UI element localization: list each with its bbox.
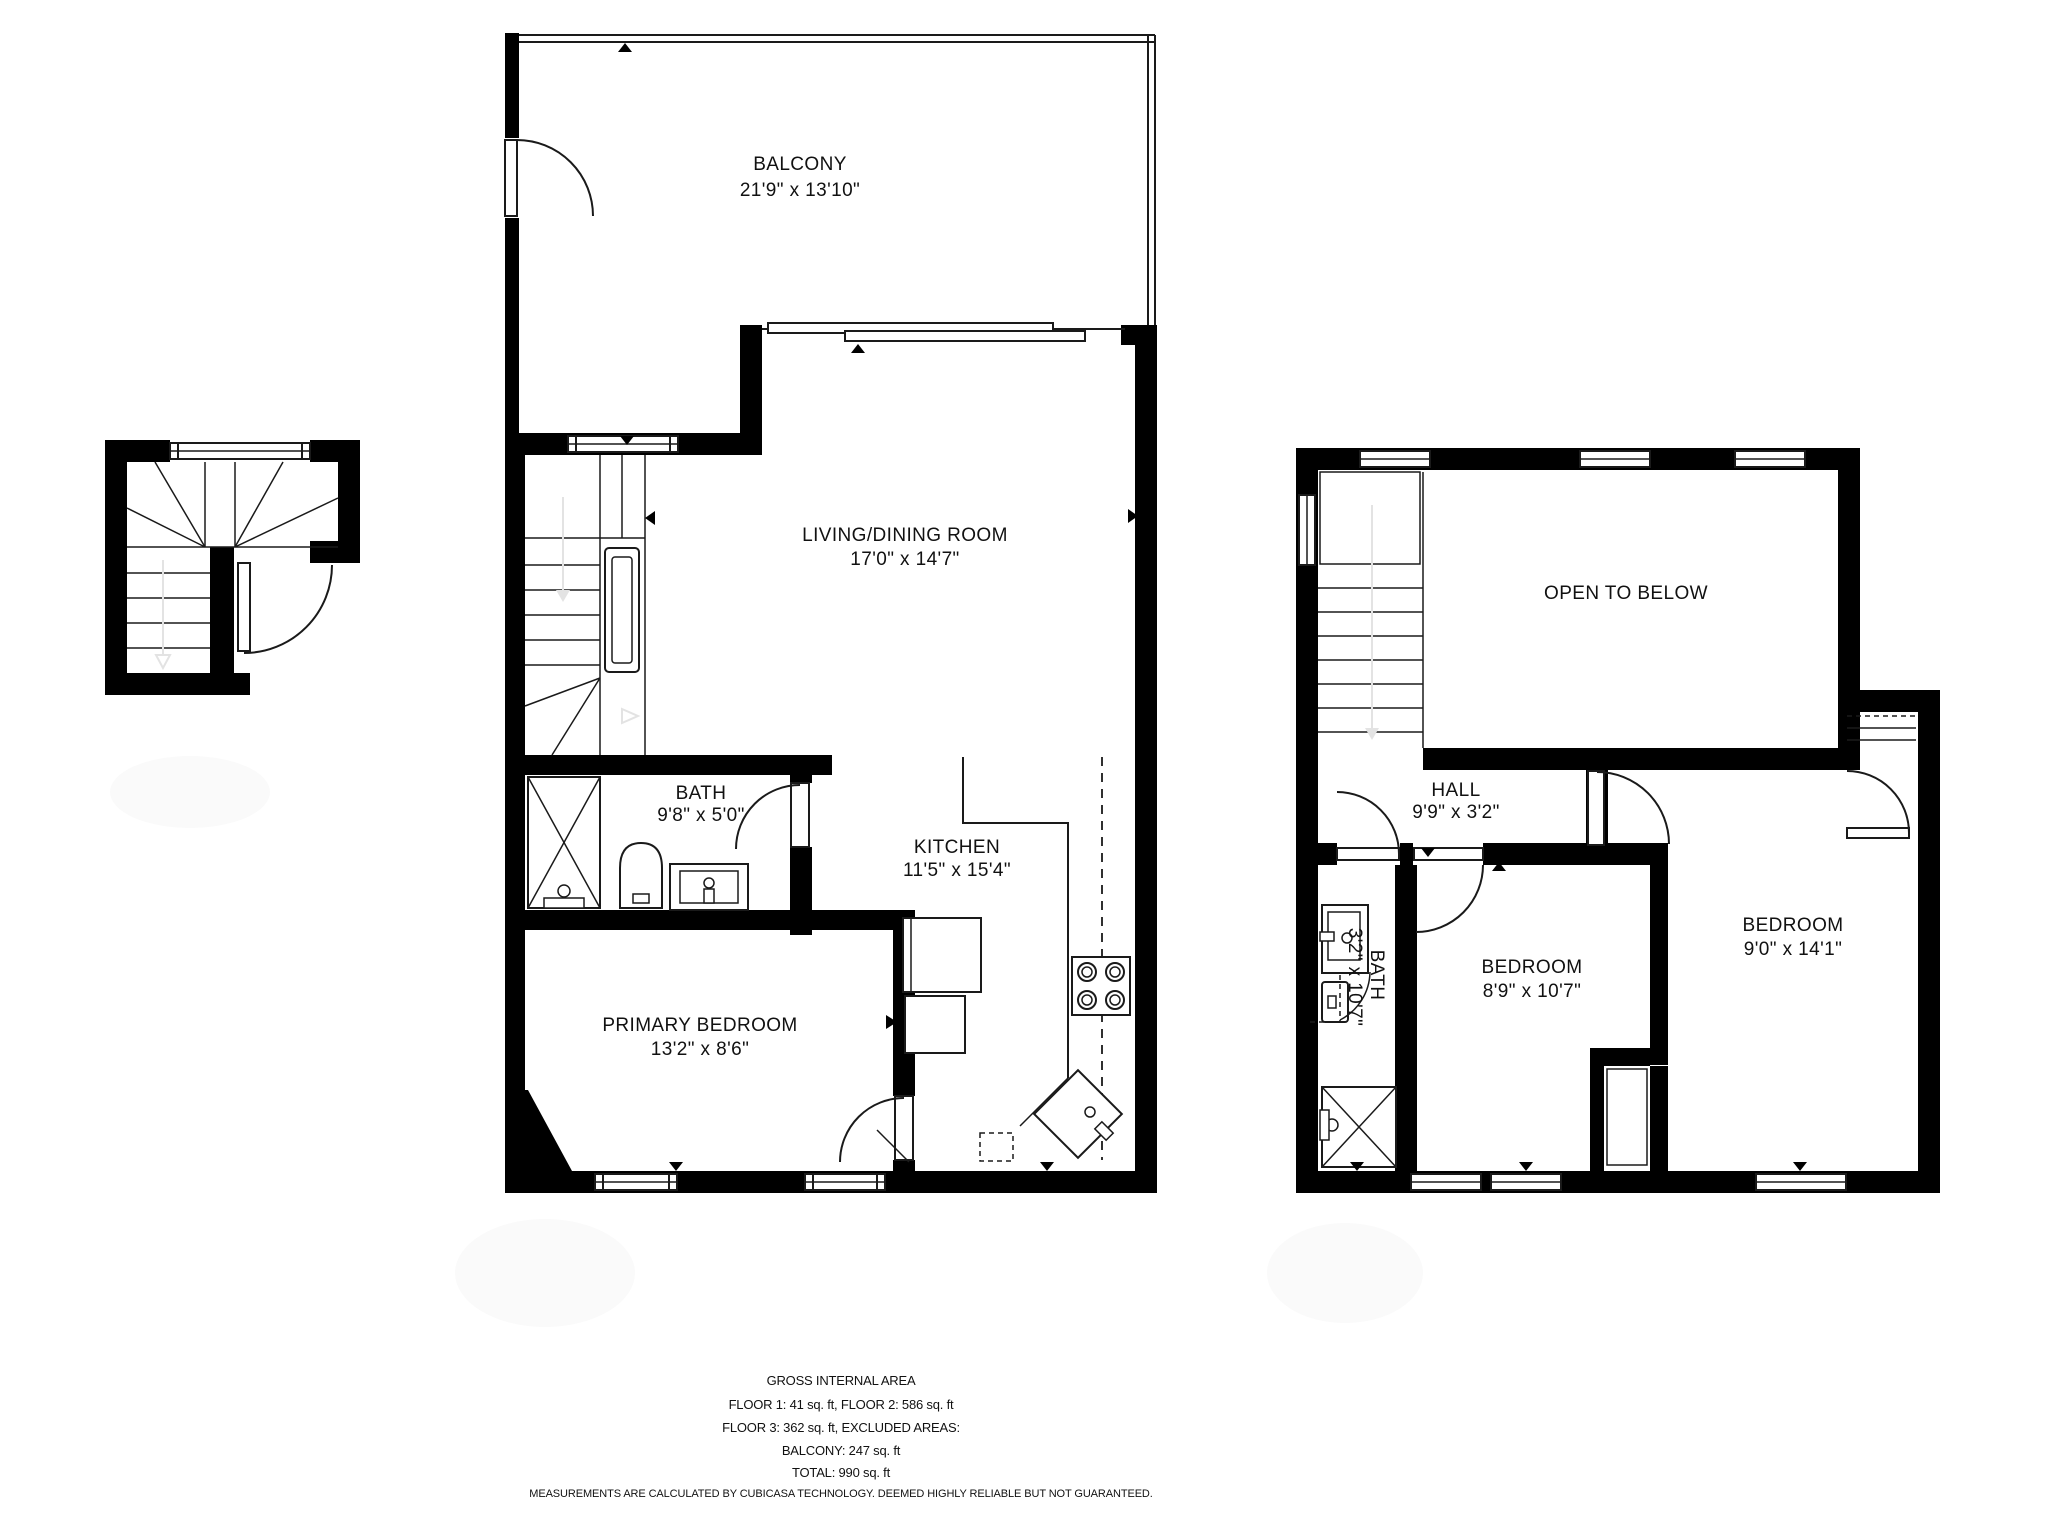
sink-vanity-icon [670, 864, 748, 910]
bedroom-right-door [1588, 771, 1669, 845]
primary-bedroom-dims: 13'2" x 8'6" [651, 1039, 749, 1060]
fridge-icon [903, 918, 981, 1053]
footer-balcony-area: BALCONY: 247 sq. ft [782, 1443, 901, 1458]
bedroom-right-label: BEDROOM [1743, 915, 1844, 936]
floor3-bath-door [1337, 792, 1399, 860]
floor-plan-drawing: BALCONY 21'9" x 13'10" LIVING/DINING ROO… [0, 0, 2048, 1536]
floor1-plan [105, 440, 360, 695]
kitchen-dims: 11'5" x 15'4" [903, 860, 1011, 881]
floor2-plan [503, 33, 1157, 1193]
balcony-dims: 21'9" x 13'10" [740, 180, 860, 201]
watermark-blobs [110, 756, 1423, 1327]
bedroom-left-dims: 8'9" x 10'7" [1483, 981, 1581, 1002]
footer-title: GROSS INTERNAL AREA [767, 1373, 916, 1388]
floor3-stairs [1318, 472, 1423, 748]
bath3-dims: 3'2" x 10'7" [1344, 928, 1365, 1026]
stove-icon [1072, 957, 1130, 1015]
floor1-entry-door [238, 563, 332, 653]
bedroom-left-door [1414, 848, 1483, 932]
hall-label: HALL [1431, 780, 1480, 801]
floor3-plan [1296, 448, 1940, 1193]
floor1-window [170, 443, 310, 459]
balcony-door [503, 138, 593, 218]
kitchen-label: KITCHEN [914, 837, 1000, 858]
footer-floor-3: FLOOR 3: 362 sq. ft, EXCLUDED AREAS: [722, 1420, 960, 1435]
floor3-shower-icon [1320, 1087, 1396, 1167]
kitchen-sink-icon [1034, 1070, 1122, 1158]
open-to-below-label: OPEN TO BELOW [1544, 583, 1708, 604]
toilet-icon [620, 843, 662, 908]
bath-door [736, 783, 812, 849]
floor3-arrows [1350, 848, 1807, 1171]
living-dining-label: LIVING/DINING ROOM [802, 525, 1008, 546]
footer-total-area: TOTAL: 990 sq. ft [792, 1465, 891, 1480]
primary-bedroom-door [840, 1096, 915, 1162]
footer-floors-1-2: FLOOR 1: 41 sq. ft, FLOOR 2: 586 sq. ft [729, 1397, 954, 1412]
balcony-label: BALCONY [753, 154, 847, 175]
primary-bedroom-label: PRIMARY BEDROOM [602, 1015, 797, 1036]
sliding-door [762, 323, 1125, 341]
bedroom-left-label: BEDROOM [1482, 957, 1583, 978]
floor2-arrows [618, 43, 1138, 1171]
bedroom-right-dims: 9'0" x 14'1" [1744, 939, 1842, 960]
floor2-stairs [525, 455, 645, 755]
living-dining-dims: 17'0" x 14'7" [850, 549, 959, 570]
shower-icon [528, 777, 600, 908]
hall-dims: 9'9" x 3'2" [1412, 802, 1499, 823]
bath2-label: BATH [676, 783, 727, 804]
footer-disclaimer: MEASUREMENTS ARE CALCULATED BY CUBICASA … [529, 1488, 1153, 1500]
bath3-label: BATH [1366, 950, 1387, 1001]
bath2-dims: 9'8" x 5'0" [657, 805, 744, 826]
floor-plan-page: BALCONY 21'9" x 13'10" LIVING/DINING ROO… [0, 0, 2048, 1536]
footer-text: GROSS INTERNAL AREA FLOOR 1: 41 sq. ft, … [529, 1373, 1153, 1500]
